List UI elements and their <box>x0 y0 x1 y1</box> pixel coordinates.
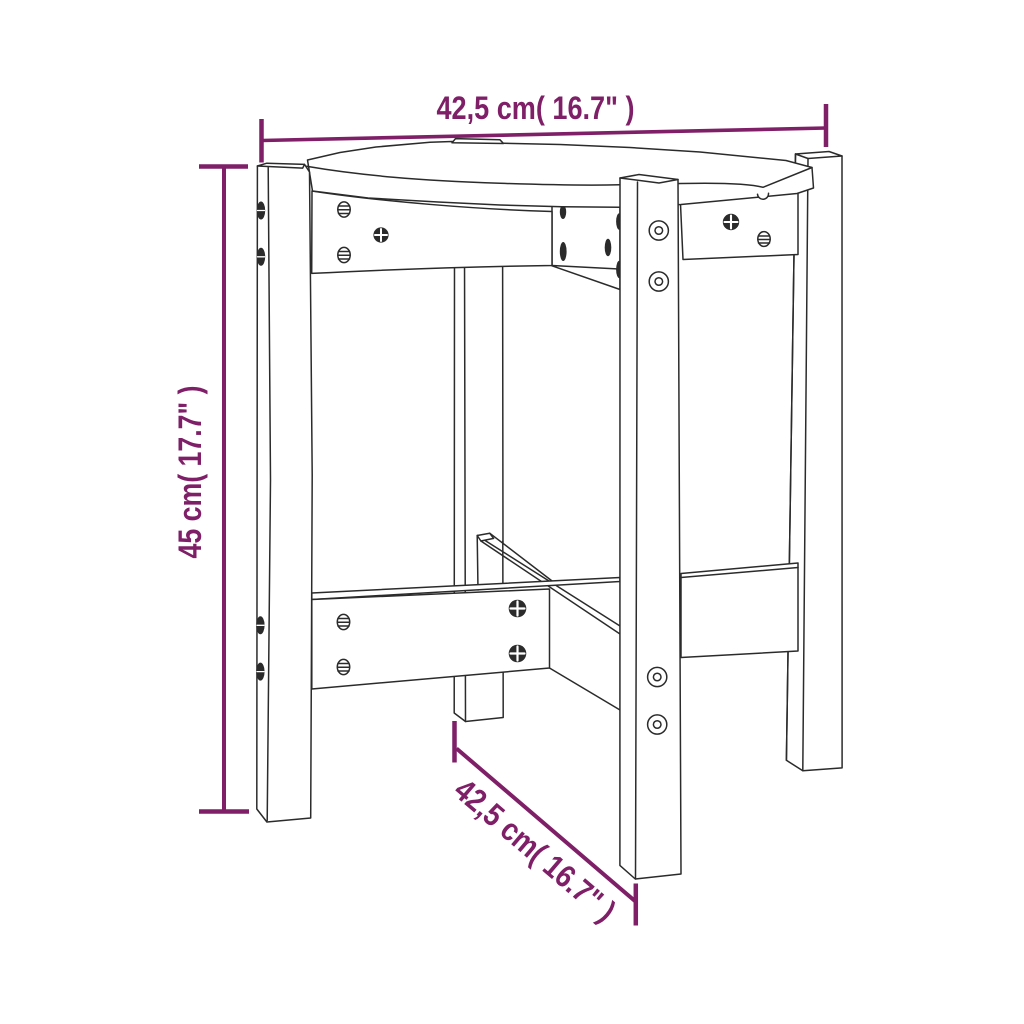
svg-text:42,5 cm( 16.7" ): 42,5 cm( 16.7" ) <box>437 90 635 126</box>
svg-text:45 cm( 17.7" ): 45 cm( 17.7" ) <box>172 386 208 559</box>
